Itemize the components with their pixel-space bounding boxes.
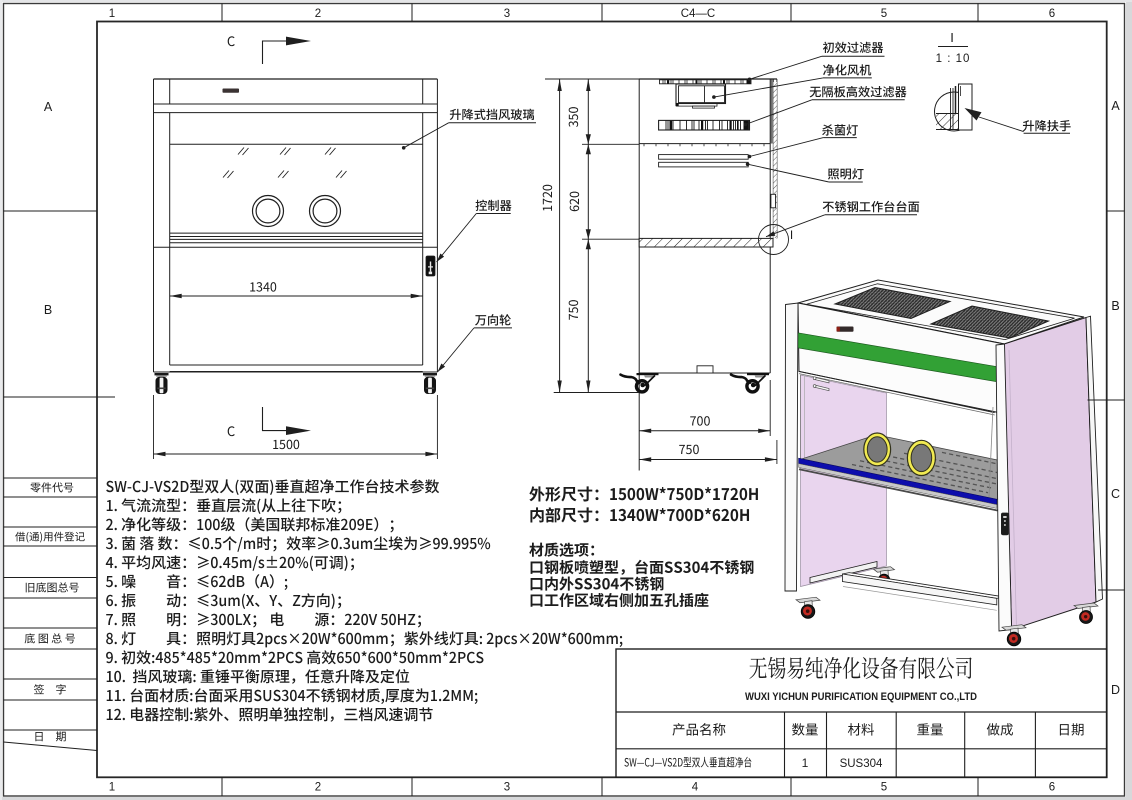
svg-text:5: 5 xyxy=(881,782,887,794)
svg-text:2: 2 xyxy=(315,782,321,794)
svg-text:A: A xyxy=(44,100,53,114)
svg-text:B: B xyxy=(44,303,52,317)
svg-text:A: A xyxy=(1111,99,1120,113)
svg-text:WUXI YICHUN PURIFICATION EQUIP: WUXI YICHUN PURIFICATION EQUIPMENT CO.,L… xyxy=(745,691,977,703)
svg-text:3: 3 xyxy=(504,8,510,20)
svg-text:6: 6 xyxy=(1049,8,1055,20)
svg-text:I: I xyxy=(950,30,954,45)
svg-text:I: I xyxy=(790,228,793,242)
svg-text:D: D xyxy=(1111,683,1120,697)
svg-text:1: 1 xyxy=(109,8,115,20)
svg-text:5: 5 xyxy=(881,8,887,20)
svg-text:3: 3 xyxy=(504,782,510,794)
svg-text:1 : 10: 1 : 10 xyxy=(936,53,971,65)
svg-text:B: B xyxy=(1111,299,1119,313)
svg-text:4: 4 xyxy=(692,782,699,794)
svg-text:C: C xyxy=(1111,487,1120,501)
svg-text:C4—C: C4—C xyxy=(681,8,716,20)
svg-text:SUS304: SUS304 xyxy=(840,758,883,770)
svg-text:1: 1 xyxy=(109,782,115,794)
svg-text:2: 2 xyxy=(315,8,321,20)
svg-text:1: 1 xyxy=(802,756,809,770)
svg-text:6: 6 xyxy=(1049,782,1055,794)
